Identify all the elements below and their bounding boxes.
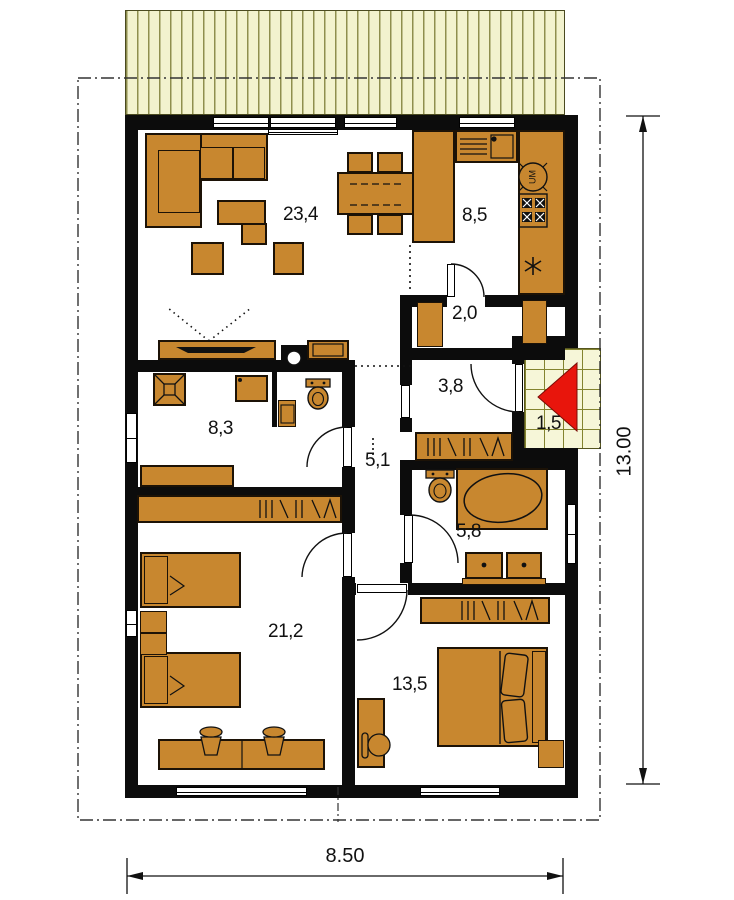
sofa-cushion [200, 147, 233, 179]
hall-door-leaf [401, 385, 410, 418]
washer-cabinet [235, 375, 268, 402]
room-area-kitchen: 8,5 [462, 205, 487, 227]
pillow [144, 656, 168, 704]
bathroom-door-arc [410, 515, 458, 563]
tv-stand [158, 340, 276, 360]
dimension-width-label: 8.50 [305, 845, 385, 868]
room-area-shower-room: 8,3 [208, 418, 233, 440]
children-door-leaf [343, 533, 352, 577]
room-area-children-bedroom: 21,2 [268, 621, 303, 643]
dimension-length-label: 13.00 [614, 411, 637, 493]
kitchen-door-arc [451, 264, 484, 297]
wall-exterior-right-upper [565, 115, 578, 348]
wall-corridor-c [342, 577, 355, 785]
fireplace-cabinet [307, 340, 349, 360]
vanity-cabinet [506, 552, 542, 579]
room-area-hallway: 5,1 [365, 450, 390, 472]
wall-hall-divider-b [400, 418, 412, 432]
bathroom-door-leaf [404, 515, 413, 563]
window-children-left [126, 610, 137, 637]
shower-tray [153, 373, 186, 406]
children-wardrobe [137, 495, 342, 523]
window-living-2 [344, 117, 397, 128]
coffee-table [217, 200, 266, 225]
pantry-shelf-left [417, 302, 443, 347]
sofa-cushion [158, 150, 200, 213]
toilet-icon [306, 379, 330, 409]
master-nightstand [538, 740, 564, 768]
front-door-leaf [515, 364, 523, 412]
wall-corridor-a [342, 360, 355, 427]
wall-living-bottom [125, 360, 355, 372]
wall-bath-left-b [400, 563, 412, 583]
master-door-arc [357, 590, 407, 640]
sofa-cushion [233, 147, 265, 179]
ottoman [191, 242, 224, 275]
dim-arrow [639, 116, 647, 132]
pantry-shelf-right [522, 300, 547, 344]
hall-wardrobe [415, 432, 513, 461]
master-wardrobe [420, 597, 550, 624]
tv-view-line [168, 308, 209, 341]
wall-shower-children [125, 487, 355, 495]
wall-corridor-b [342, 467, 355, 533]
room-area-entry-hall: 3,8 [438, 376, 463, 398]
vanity-counter [462, 578, 546, 585]
wall-porch-bottom [512, 448, 578, 460]
wall-bath-left-a [400, 470, 412, 515]
room-area-master-bedroom: 13,5 [392, 674, 427, 696]
coffee-table-small [241, 223, 267, 245]
wall-exterior-right-lower [565, 450, 578, 798]
chimney-block [281, 345, 307, 372]
window-slider-sill [268, 129, 338, 135]
kitchen-sink-unit [455, 130, 518, 163]
master-desk [357, 698, 385, 768]
dim-arrow [127, 872, 143, 880]
dining-table [337, 172, 414, 215]
dim-arrow [639, 768, 647, 784]
master-bed-headboard [532, 651, 546, 743]
vanity-cabinet [465, 552, 503, 579]
wall-hall-divider-a [400, 360, 412, 385]
room-area-living-room: 23,4 [283, 204, 318, 226]
shower-room-cabinet [140, 465, 234, 487]
nightstand [140, 611, 167, 633]
kitchen-door-leaf [447, 264, 455, 297]
room-area-pantry: 2,0 [452, 303, 477, 325]
ottoman [273, 242, 304, 275]
window-living-1 [213, 117, 269, 128]
dim-arrow [547, 872, 563, 880]
dining-chair [347, 214, 373, 235]
kitchen-counter-right [518, 130, 565, 295]
children-desk [158, 739, 325, 770]
wall-pantry-hall [400, 348, 565, 360]
wall-front-door-b [512, 412, 524, 448]
wc-sink [278, 400, 296, 427]
floor-plan: UM [0, 0, 734, 900]
wall-front-door-a [512, 348, 524, 364]
dining-chair [377, 152, 403, 173]
dining-chair [377, 214, 403, 235]
shower-room-door-arc [307, 427, 347, 467]
children-door-arc [302, 533, 347, 577]
room-area-entry-porch: 1,5 [536, 413, 561, 435]
dining-chair [347, 152, 373, 173]
window-shower-room [126, 413, 137, 463]
window-master-bottom [420, 787, 500, 796]
nightstand [140, 633, 167, 655]
tv-view-line [209, 308, 251, 341]
roof-overhang [125, 10, 565, 115]
window-kitchen [459, 117, 515, 128]
room-area-bathroom: 5,8 [456, 521, 481, 543]
window-children-bottom [176, 787, 307, 796]
shower-room-door-leaf [343, 427, 352, 467]
window-bathroom [567, 504, 576, 564]
kitchen-counter-left [412, 130, 455, 243]
master-door-leaf [357, 584, 407, 593]
front-door-arc [471, 364, 519, 412]
pillow [144, 556, 168, 604]
toilet-icon [426, 470, 454, 502]
window-living-slider [270, 117, 336, 128]
wall-wc-partition [272, 372, 277, 427]
